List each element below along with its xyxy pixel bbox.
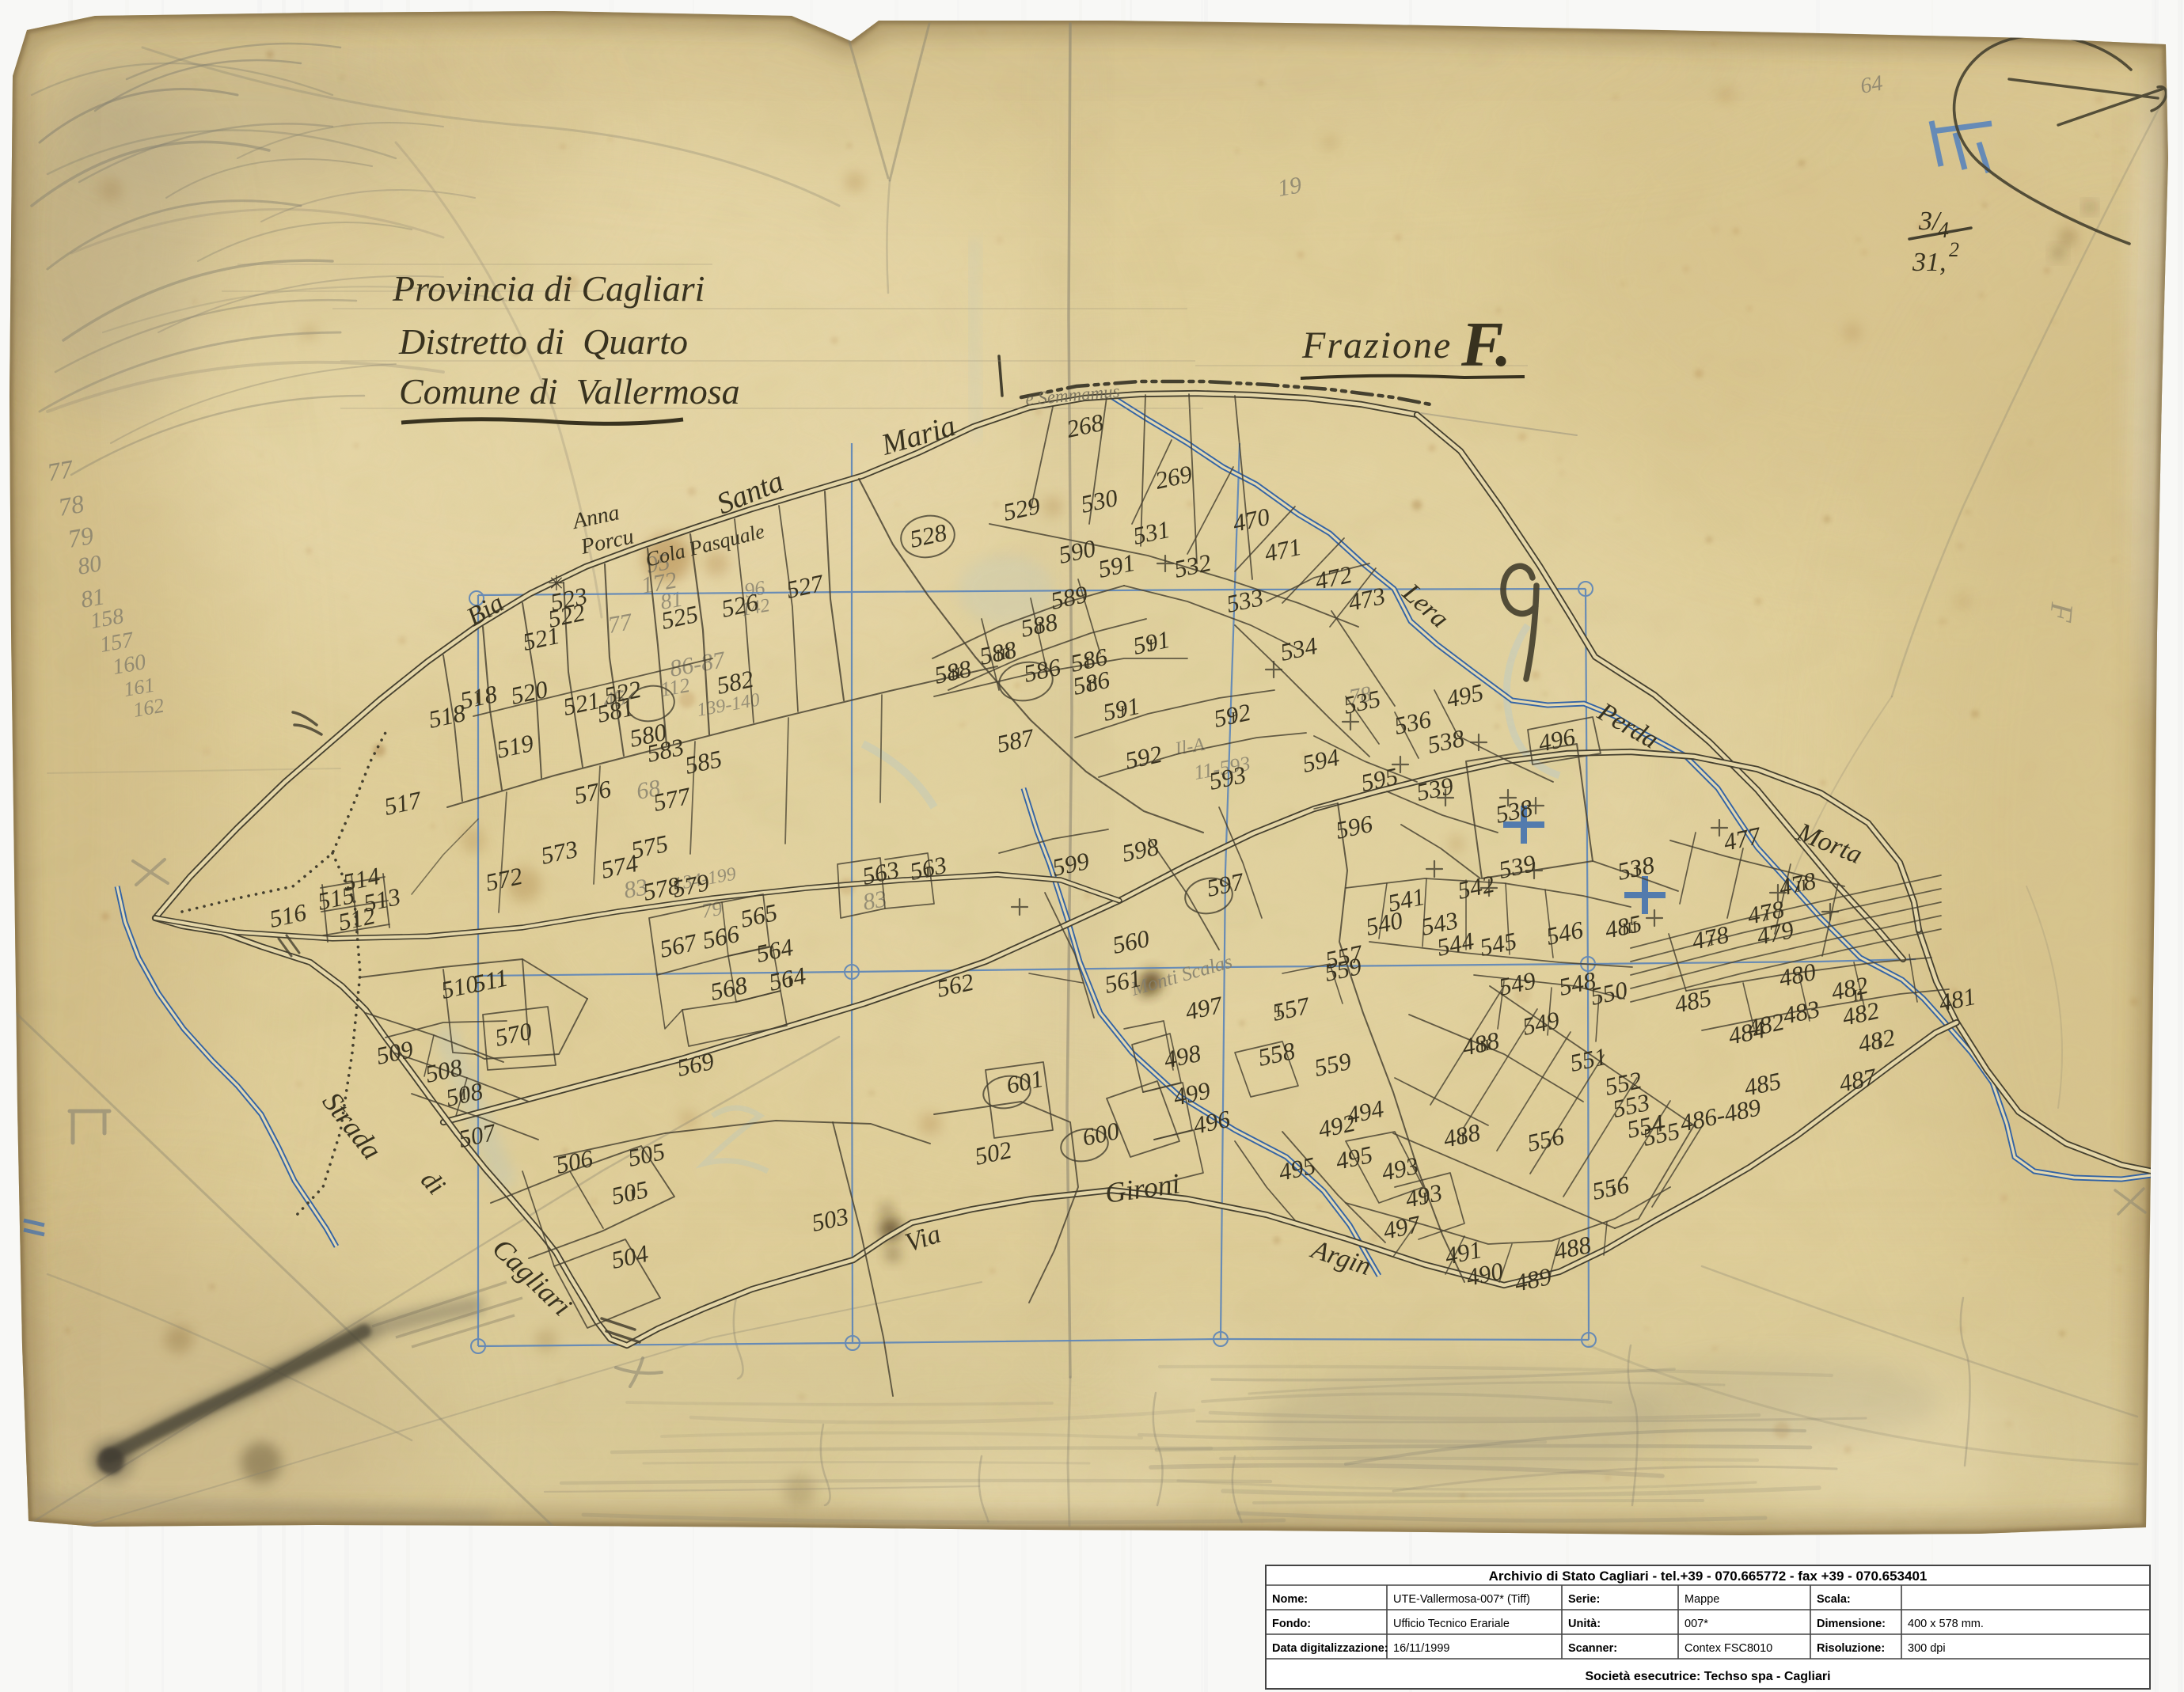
svg-text:Risoluzione:: Risoluzione: (1817, 1642, 1885, 1655)
svg-text:Data digitalizzazione:: Data digitalizzazione: (1272, 1642, 1388, 1655)
svg-text:31,: 31, (1912, 248, 1947, 277)
svg-text:300 dpi: 300 dpi (1908, 1642, 1946, 1655)
svg-text:Archivio di Stato Cagliari - t: Archivio di Stato Cagliari - tel.+39 - 0… (1489, 1569, 1928, 1584)
svg-text:Dimensione:: Dimensione: (1817, 1618, 1886, 1630)
svg-text:Provincia di Cagliari: Provincia di Cagliari (392, 268, 705, 309)
svg-text:16/11/1999: 16/11/1999 (1393, 1642, 1450, 1655)
svg-text:Scala:: Scala: (1817, 1593, 1851, 1606)
svg-text:Contex FSC8010: Contex FSC8010 (1685, 1642, 1772, 1655)
svg-text:F: F (2043, 600, 2080, 624)
svg-text:Nome:: Nome: (1272, 1593, 1308, 1606)
svg-text:Scanner:: Scanner: (1568, 1642, 1617, 1655)
svg-text:Fondo:: Fondo: (1272, 1618, 1311, 1630)
svg-text:79: 79 (66, 521, 96, 553)
svg-text:Società esecutrice: Techso spa: Società esecutrice: Techso spa - Cagliar… (1585, 1670, 1830, 1683)
svg-text:4: 4 (1938, 218, 1949, 243)
svg-text:UTE-Vallermosa-007* (Tiff): UTE-Vallermosa-007* (Tiff) (1393, 1593, 1530, 1606)
svg-text:Serie:: Serie: (1568, 1593, 1600, 1606)
svg-text:400 x 578 mm.: 400 x 578 mm. (1908, 1618, 1984, 1630)
svg-text:F.: F. (1460, 310, 1511, 380)
svg-text:19: 19 (1275, 172, 1303, 202)
svg-text:Ufficio Tecnico Erariale: Ufficio Tecnico Erariale (1393, 1618, 1510, 1630)
svg-text:78: 78 (56, 489, 86, 522)
svg-text:Frazione: Frazione (1301, 324, 1452, 366)
svg-text:Comune di Vallermosa: Comune di Vallermosa (399, 371, 740, 412)
svg-text:80: 80 (75, 550, 103, 580)
svg-text:2: 2 (1949, 238, 1959, 261)
svg-text:Mappe: Mappe (1685, 1593, 1719, 1606)
svg-text:Distretto di Quarto: Distretto di Quarto (398, 321, 688, 362)
svg-text:Unità:: Unità: (1568, 1618, 1601, 1630)
svg-text:007*: 007* (1685, 1618, 1708, 1630)
svg-text:64: 64 (1859, 71, 1885, 99)
